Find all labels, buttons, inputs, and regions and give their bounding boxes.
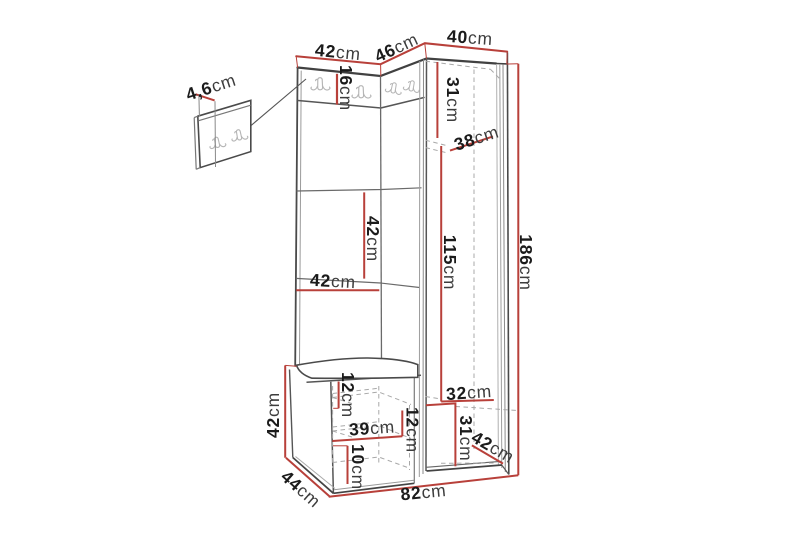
svg-text:115cm: 115cm <box>440 235 460 291</box>
svg-text:12cm: 12cm <box>403 407 423 453</box>
svg-text:31cm: 31cm <box>443 77 463 123</box>
svg-text:16cm: 16cm <box>336 65 356 111</box>
svg-text:32cm: 32cm <box>445 381 492 404</box>
svg-text:186cm: 186cm <box>516 234 536 291</box>
svg-text:10cm: 10cm <box>348 444 368 490</box>
svg-text:12cm: 12cm <box>338 372 358 418</box>
svg-text:42cm: 42cm <box>363 216 383 262</box>
svg-text:39cm: 39cm <box>348 416 395 439</box>
svg-text:40cm: 40cm <box>446 26 493 49</box>
svg-text:42cm: 42cm <box>263 392 283 438</box>
svg-text:42cm: 42cm <box>310 270 357 292</box>
